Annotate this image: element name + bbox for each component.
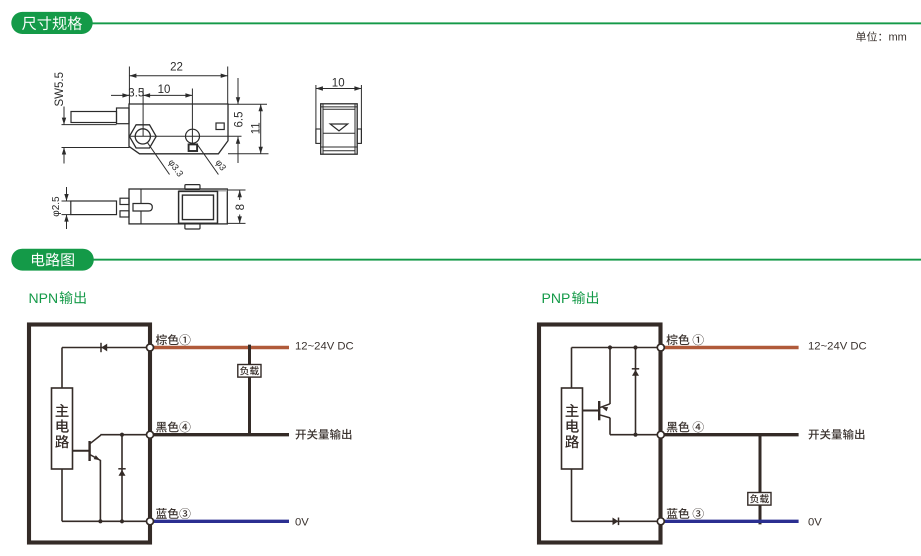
svg-text:6.5: 6.5 [234,112,246,128]
svg-text:φ3.3: φ3.3 [166,158,185,179]
svg-text:SW5.5: SW5.5 [54,72,66,107]
svg-text:0V: 0V [295,516,309,528]
svg-text:3.5: 3.5 [128,88,144,100]
svg-text:22: 22 [170,61,183,73]
svg-text:mm: mm [889,32,907,44]
svg-text:φ2.5: φ2.5 [51,196,62,217]
svg-text:12~24V DC: 12~24V DC [808,340,867,352]
svg-text:NPN: NPN [29,290,59,306]
svg-text:10: 10 [158,84,171,96]
svg-text:12~24V DC: 12~24V DC [295,340,354,352]
svg-text:8: 8 [235,204,247,210]
svg-text:PNP: PNP [542,290,571,306]
svg-text:11: 11 [250,122,262,134]
svg-text:10: 10 [332,77,345,89]
svg-text:0V: 0V [808,516,822,528]
